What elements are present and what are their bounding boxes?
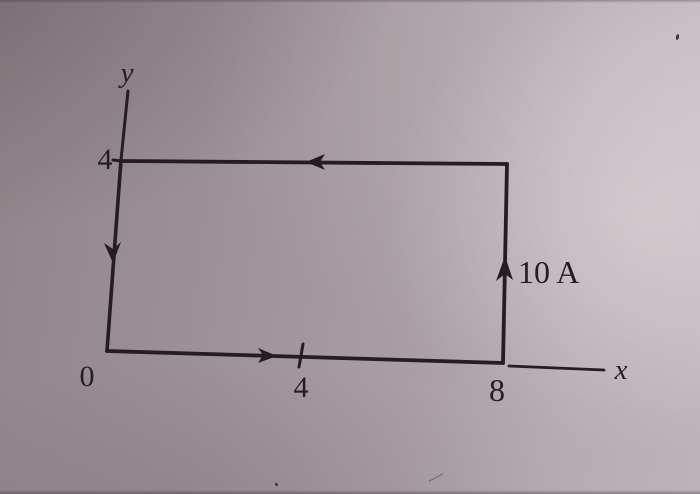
x-tick-4-mark [299, 344, 303, 367]
origin-label: 0 [80, 360, 95, 393]
y-axis-label: y [118, 57, 134, 89]
y-tick-4-label: 4 [98, 143, 113, 176]
textbook-figure-photo: y 4 0 4 8 x 10 A [0, 0, 700, 494]
x-tick-8-label: 8 [489, 372, 505, 408]
loop-bottom-side [107, 351, 503, 363]
x-tick-4-label: 4 [294, 371, 309, 404]
dust-speck [275, 483, 278, 486]
current-arrow-down-icon [104, 242, 121, 263]
y-axis-line [121, 91, 128, 160]
current-value-label: 10 A [518, 254, 579, 290]
current-loop-diagram: y 4 0 4 8 x 10 A [0, 0, 700, 494]
x-axis-line [509, 366, 604, 370]
x-axis-label: x [614, 354, 628, 386]
